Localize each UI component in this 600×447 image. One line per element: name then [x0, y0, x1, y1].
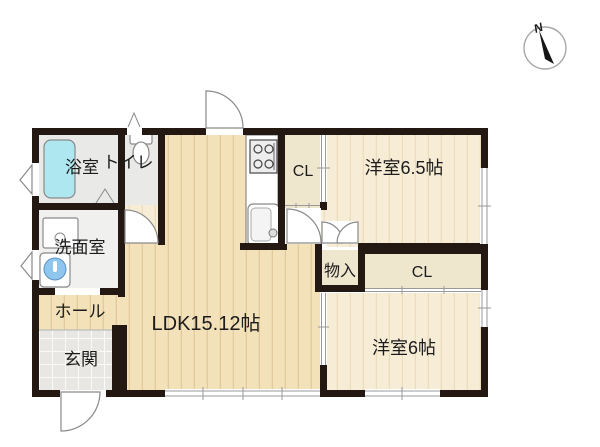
washroom-label: 洗面室 — [55, 238, 106, 257]
closet-kitchen-label: CL — [293, 163, 314, 180]
stove — [250, 140, 277, 173]
hall-label: ホール — [55, 302, 106, 321]
kitchen-back-door — [206, 91, 243, 128]
storage-label: 物入 — [324, 262, 356, 280]
floor-plan-canvas: 浴室 トイレ 洗面室 ホール 玄関 LDK15.12帖 CL 洋室6.5帖 物入… — [0, 0, 600, 447]
entrance-label: 玄関 — [64, 350, 98, 369]
bathroom-window — [20, 165, 32, 194]
bathroom-label: 浴室 — [65, 158, 99, 177]
compass: N — [524, 20, 566, 69]
kitchen-sink — [248, 204, 279, 246]
hall-ldk-opening-floor — [118, 297, 127, 325]
washbasin — [40, 253, 70, 287]
bedroom1-label: 洋室6.5帖 — [364, 158, 443, 178]
toilet-window — [127, 113, 142, 135]
closet-bedroom2-label: CL — [412, 264, 433, 281]
toilet-label: トイレ — [103, 153, 154, 172]
entrance-front-door — [61, 392, 100, 431]
ldk-label: LDK15.12帖 — [152, 312, 261, 335]
floor-plan-page: 浴室 トイレ 洗面室 ホール 玄関 LDK15.12帖 CL 洋室6.5帖 物入… — [0, 0, 600, 447]
washroom-window — [21, 252, 32, 279]
bedroom2-label: 洋室6帖 — [372, 338, 436, 358]
